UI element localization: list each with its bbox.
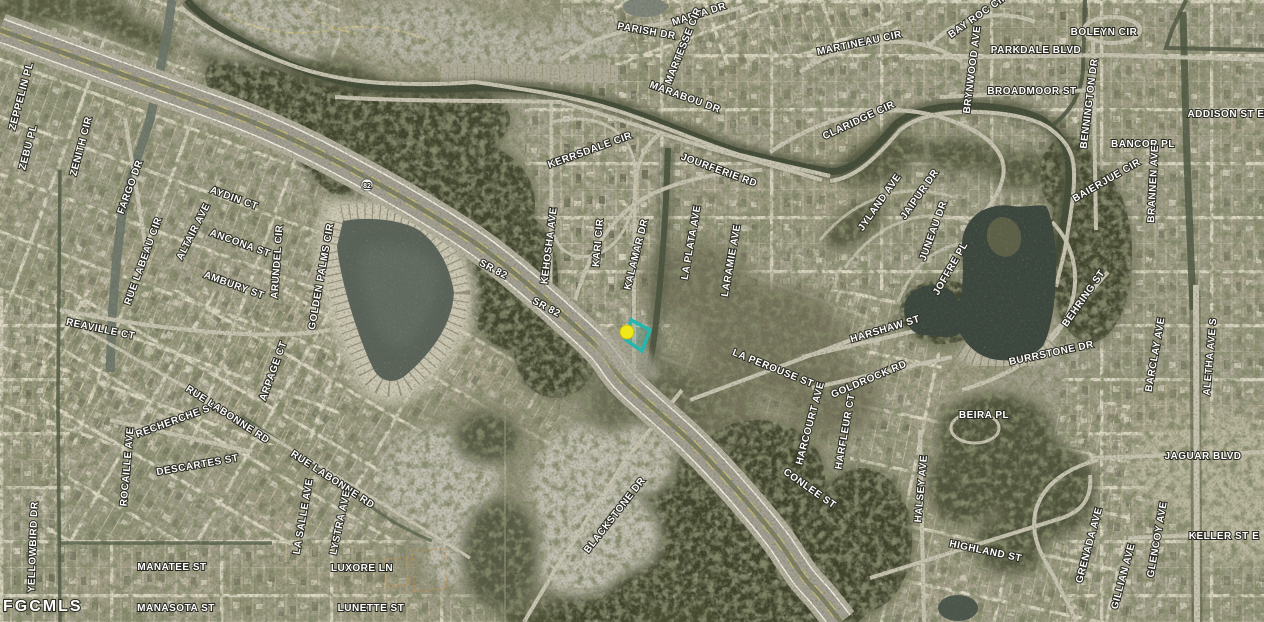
svg-text:BEIRA PL: BEIRA PL [959,410,1009,421]
svg-text:BROADMOOR ST: BROADMOOR ST [987,86,1076,97]
svg-text:BOLEYN CIR: BOLEYN CIR [1071,27,1138,38]
svg-text:LUNETTE ST: LUNETTE ST [338,603,405,614]
svg-text:ADDISON ST E: ADDISON ST E [1187,109,1264,120]
svg-text:MANATEE ST: MANATEE ST [137,562,206,573]
svg-text:82: 82 [363,183,371,190]
svg-text:LUXORE LN: LUXORE LN [331,563,393,574]
svg-text:PARKDALE BLVD: PARKDALE BLVD [991,45,1082,56]
svg-text:JAGUAR BLVD: JAGUAR BLVD [1165,451,1242,462]
svg-text:MANASOTA ST: MANASOTA ST [137,603,215,614]
svg-text:KELLER ST E: KELLER ST E [1189,531,1260,542]
svg-text:BANCOR PL: BANCOR PL [1111,139,1175,150]
svg-text:FGCMLS: FGCMLS [3,598,83,615]
